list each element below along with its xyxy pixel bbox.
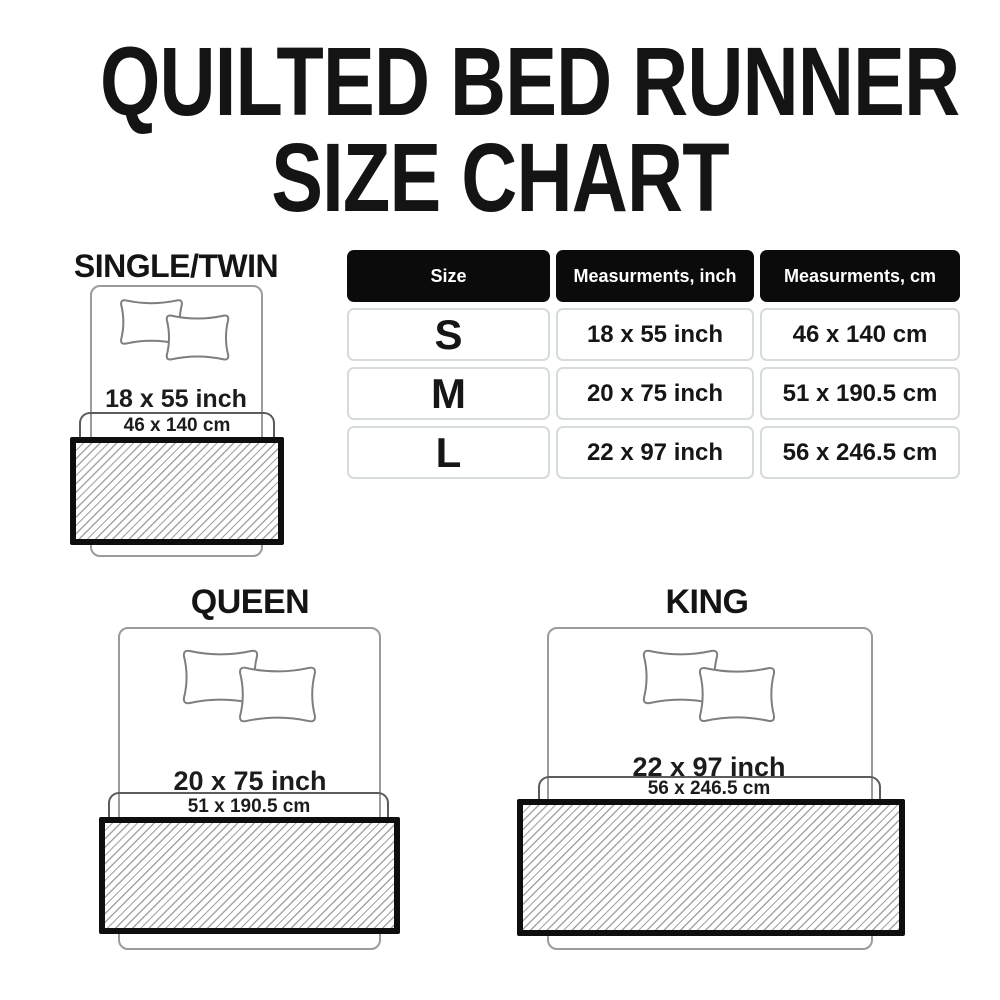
pillow-icon bbox=[161, 311, 234, 364]
title-line-1: QUILTED BED RUNNER bbox=[100, 34, 900, 130]
size-chart-infographic: QUILTED BED RUNNER SIZE CHART SINGLE/TWI… bbox=[0, 0, 1000, 1000]
page-title: QUILTED BED RUNNER SIZE CHART bbox=[0, 34, 1000, 226]
table-cell-inch-m: 20 x 75 inch bbox=[556, 367, 754, 420]
table-cell-inch-s: 18 x 55 inch bbox=[556, 308, 754, 361]
table-cell-inch-l: 22 x 97 inch bbox=[556, 426, 754, 479]
single-twin-cm-dimension-label: 46 x 140 cm bbox=[77, 415, 277, 437]
table-header-size: Size bbox=[347, 250, 550, 302]
table-cell-cm-m: 51 x 190.5 cm bbox=[760, 367, 960, 420]
single-twin-label: SINGLE/TWIN bbox=[26, 248, 326, 285]
king-label: KING bbox=[557, 583, 857, 622]
pillow-icon bbox=[693, 662, 781, 727]
table-header-cm: Measurments, cm bbox=[760, 250, 960, 302]
pillow-icon bbox=[233, 662, 322, 727]
single-twin-inch-dimension-label: 18 x 55 inch bbox=[76, 385, 276, 414]
table-cell-cm-s: 46 x 140 cm bbox=[760, 308, 960, 361]
queen-label: QUEEN bbox=[100, 583, 400, 622]
table-cell-size-l: L bbox=[347, 426, 550, 479]
size-table: Size Measurments, inch Measurments, cm S… bbox=[347, 250, 960, 479]
title-line-2: SIZE CHART bbox=[100, 130, 900, 226]
queen-inch-dimension-label: 20 x 75 inch bbox=[150, 766, 350, 797]
table-cell-size-s: S bbox=[347, 308, 550, 361]
queen-cm-dimension-label: 51 x 190.5 cm bbox=[149, 796, 349, 818]
table-cell-cm-l: 56 x 246.5 cm bbox=[760, 426, 960, 479]
table-header-inch: Measurments, inch bbox=[556, 250, 754, 302]
king-cm-dimension-label: 56 x 246.5 cm bbox=[609, 778, 809, 800]
table-cell-size-m: M bbox=[347, 367, 550, 420]
single-twin-runner-swatch bbox=[70, 437, 284, 545]
king-runner-swatch bbox=[517, 799, 905, 936]
queen-runner-swatch bbox=[99, 817, 400, 934]
